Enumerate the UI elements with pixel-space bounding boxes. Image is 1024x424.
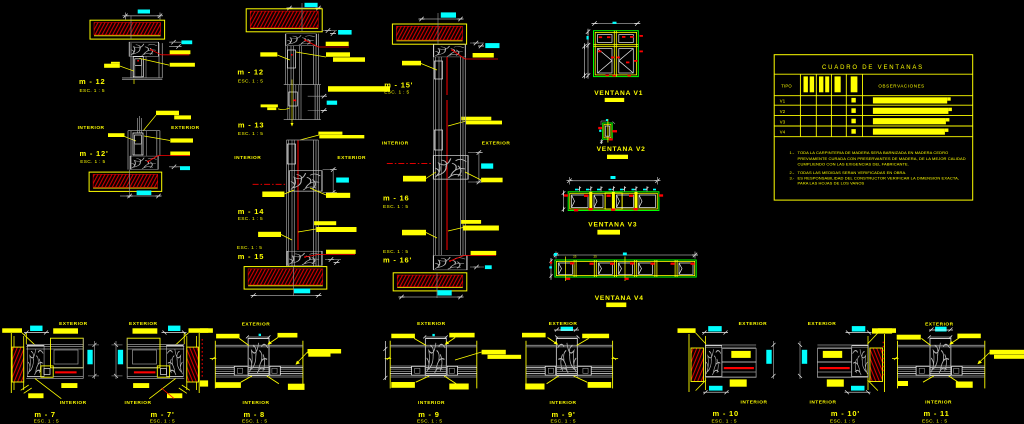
svg-text:EXTERIOR: EXTERIOR: [129, 321, 158, 327]
svg-text:ESC. 1 : 5: ESC. 1 : 5: [238, 79, 263, 85]
svg-text:INTERIOR: INTERIOR: [741, 400, 768, 406]
svg-text:ESC. 1 : 5: ESC. 1 : 5: [383, 249, 408, 255]
svg-text:TIPO: TIPO: [781, 84, 792, 89]
svg-text:EXTERIOR: EXTERIOR: [417, 321, 446, 327]
svg-text:ESC. 1 : 5: ESC. 1 : 5: [551, 418, 576, 424]
svg-text:INTERIOR: INTERIOR: [550, 400, 577, 406]
svg-text:ESC. 1 : 5: ESC. 1 : 5: [384, 90, 409, 96]
svg-text:INTERIOR: INTERIOR: [234, 155, 261, 161]
svg-text:EXTERIOR: EXTERIOR: [171, 125, 200, 131]
svg-text:INTERIOR: INTERIOR: [810, 400, 837, 406]
svg-text:ESC. 1 : 5: ESC. 1 : 5: [830, 418, 855, 424]
svg-text:EXTERIOR: EXTERIOR: [739, 321, 768, 327]
svg-text:m - 11: m - 11: [924, 409, 950, 418]
svg-text:INTERIOR: INTERIOR: [243, 400, 270, 406]
svg-text:ESC. 1 : 5: ESC. 1 : 5: [242, 418, 267, 424]
svg-text:V2: V2: [780, 109, 786, 114]
svg-text:INTERIOR: INTERIOR: [382, 141, 409, 147]
svg-text:ESC. 1 : 5: ESC. 1 : 5: [80, 88, 105, 94]
svg-text:m - 12': m - 12': [80, 149, 109, 158]
svg-text:m - 16': m - 16': [383, 256, 412, 265]
svg-text:PREVIAMENTE CURADA CON PRES: PREVIAMENTE CURADA CON PRESERVANTES DE M…: [798, 156, 966, 161]
svg-text:INTERIOR: INTERIOR: [418, 400, 445, 406]
svg-text:m - 13: m - 13: [238, 121, 264, 130]
svg-text:ESC. 1 : 5: ESC. 1 : 5: [237, 245, 262, 251]
svg-text:ESC. 1 : 5: ESC. 1 : 5: [712, 418, 737, 424]
svg-text:25: 25: [594, 255, 598, 259]
svg-text:INTERIOR: INTERIOR: [60, 400, 87, 406]
svg-text:3.-: 3.-: [790, 176, 795, 181]
svg-text:2.-: 2.-: [790, 170, 795, 175]
svg-text:m - 7': m - 7': [151, 410, 175, 419]
svg-text:1.-: 1.-: [790, 150, 795, 155]
svg-text:EXTERIOR: EXTERIOR: [337, 155, 366, 161]
svg-text:PARA LAS HOJAS DE LOS VAN: PARA LAS HOJAS DE LOS VANOS: [798, 181, 865, 186]
svg-text:ESC. 1 : 5: ESC. 1 : 5: [238, 216, 263, 222]
svg-text:VENTANA V1: VENTANA V1: [594, 90, 643, 97]
svg-text:V3: V3: [780, 119, 786, 124]
svg-text:m - 15': m - 15': [384, 81, 413, 90]
svg-text:m - 16: m - 16: [383, 193, 409, 202]
svg-text:VENTANA V3: VENTANA V3: [588, 222, 637, 229]
svg-text:ESC. 1 : 5: ESC. 1 : 5: [417, 418, 442, 424]
svg-text:V1: V1: [780, 99, 786, 104]
svg-text:ESC. 1 : 5: ESC. 1 : 5: [922, 418, 947, 424]
svg-text:EXTERIOR: EXTERIOR: [242, 322, 271, 328]
svg-text:ESC. 1 : 5: ESC. 1 : 5: [34, 418, 59, 424]
svg-text:m - 9: m - 9: [418, 410, 440, 419]
svg-text:CUADRO DE VENTANAS: CUADRO DE VENTANAS: [822, 65, 924, 71]
svg-text:ESC. 1 : 5: ESC. 1 : 5: [80, 159, 105, 165]
svg-text:INTERIOR: INTERIOR: [78, 125, 105, 131]
svg-text:V4: V4: [780, 130, 786, 135]
svg-text:EXTERIOR: EXTERIOR: [482, 141, 511, 147]
svg-text:m - 7: m - 7: [34, 410, 56, 419]
svg-text:m - 9': m - 9': [552, 410, 576, 419]
svg-text:m - 12: m - 12: [79, 77, 105, 86]
svg-text:TODAS LAS MEDIDAS SERAN VE: TODAS LAS MEDIDAS SERAN VERIFICADAS EN O…: [798, 170, 907, 175]
svg-text:m - 10: m - 10: [713, 409, 739, 418]
svg-text:EXTERIOR: EXTERIOR: [59, 321, 88, 327]
svg-text:m - 15: m - 15: [238, 252, 264, 261]
svg-text:VENTANA V2: VENTANA V2: [597, 146, 646, 153]
svg-text:OBSERVACIONES: OBSERVACIONES: [878, 84, 924, 89]
svg-text:INTERIOR: INTERIOR: [925, 400, 952, 406]
svg-text:EXTERIOR: EXTERIOR: [925, 322, 954, 328]
svg-text:m - 14: m - 14: [238, 207, 265, 216]
svg-text:CUMPLIENDO CON LAS EXIGENCI: CUMPLIENDO CON LAS EXIGENCIAS DEL FABRIC…: [798, 162, 910, 167]
svg-text:ESC. 1 : 5: ESC. 1 : 5: [150, 418, 175, 424]
svg-text:EXTERIOR: EXTERIOR: [808, 321, 837, 327]
svg-text:VENTANA V4: VENTANA V4: [595, 295, 644, 302]
svg-text:TODA LA CARPINTERIA DE MAD: TODA LA CARPINTERIA DE MADERA SERA BARNI…: [798, 150, 949, 155]
svg-text:ESC. 1 : 5: ESC. 1 : 5: [238, 131, 263, 137]
svg-text:m - 12: m - 12: [237, 68, 263, 77]
svg-text:EXTERIOR: EXTERIOR: [549, 321, 578, 327]
svg-text:25: 25: [573, 255, 577, 259]
svg-text:INTERIOR: INTERIOR: [125, 400, 152, 406]
svg-text:m - 10': m - 10': [831, 409, 860, 418]
svg-text:ESC. 1 : 5: ESC. 1 : 5: [383, 204, 408, 210]
svg-text:m - 8: m - 8: [244, 410, 266, 419]
